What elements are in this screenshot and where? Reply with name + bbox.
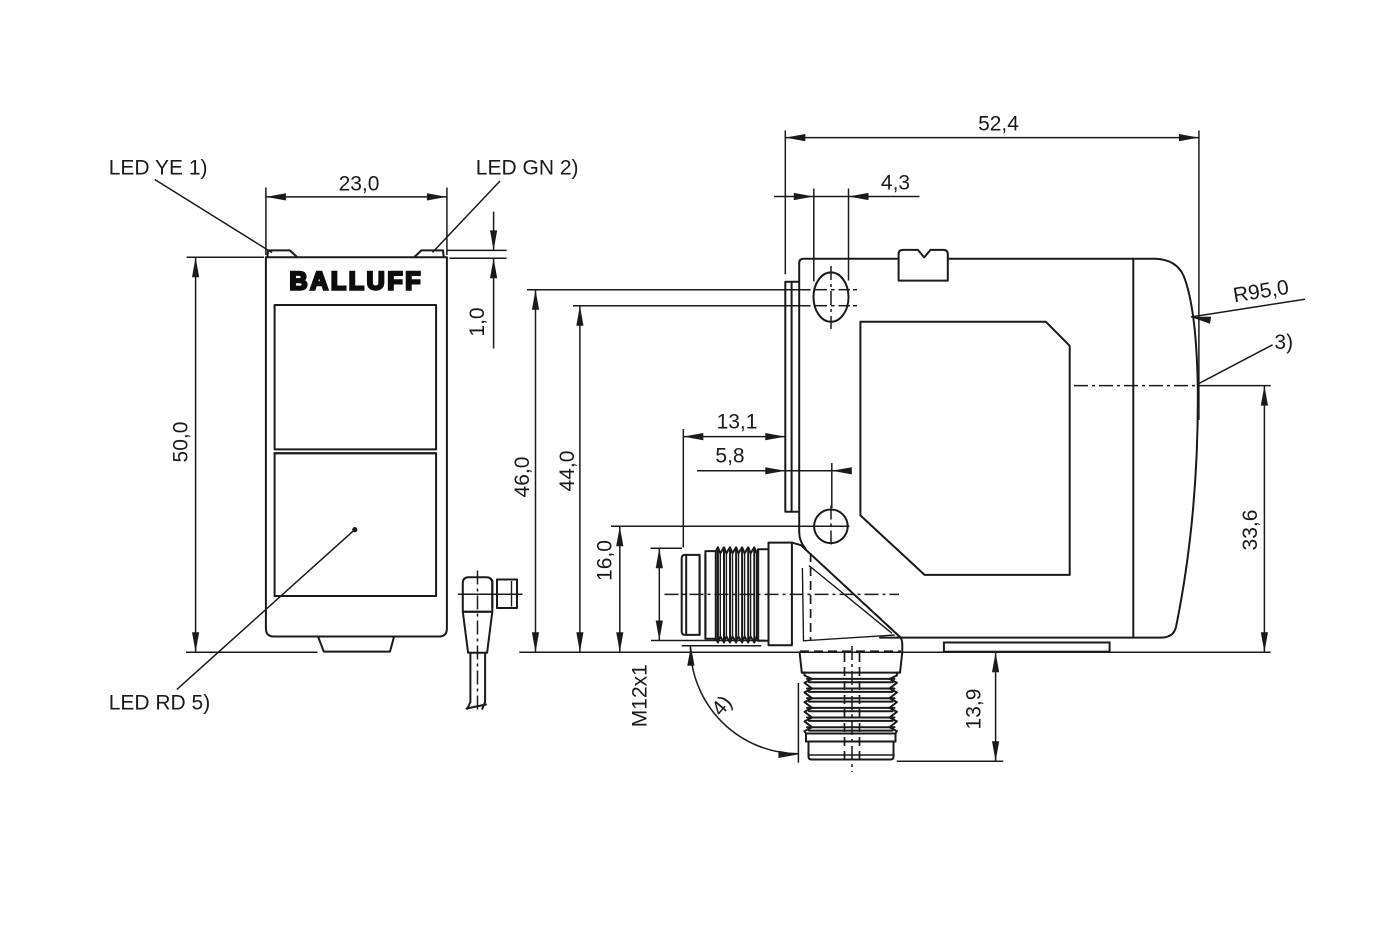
svg-text:23,0: 23,0 <box>339 173 380 196</box>
svg-text:46,0: 46,0 <box>511 457 534 498</box>
svg-text:4,3: 4,3 <box>881 172 910 195</box>
svg-text:16,0: 16,0 <box>594 540 617 581</box>
svg-text:LED RD 5): LED RD 5) <box>109 692 211 715</box>
svg-text:52,4: 52,4 <box>978 113 1019 136</box>
svg-text:13,9: 13,9 <box>963 689 986 730</box>
svg-text:LED YE 1): LED YE 1) <box>109 157 208 180</box>
svg-text:M12x1: M12x1 <box>629 664 652 727</box>
svg-text:13,1: 13,1 <box>717 411 758 434</box>
svg-text:3): 3) <box>1274 331 1293 354</box>
svg-text:44,0: 44,0 <box>556 451 579 492</box>
svg-text:33,6: 33,6 <box>1239 510 1262 551</box>
svg-text:5,8: 5,8 <box>715 445 744 468</box>
svg-text:1,0: 1,0 <box>466 307 489 336</box>
svg-text:50,0: 50,0 <box>170 422 193 463</box>
svg-text:LED GN 2): LED GN 2) <box>476 157 579 180</box>
